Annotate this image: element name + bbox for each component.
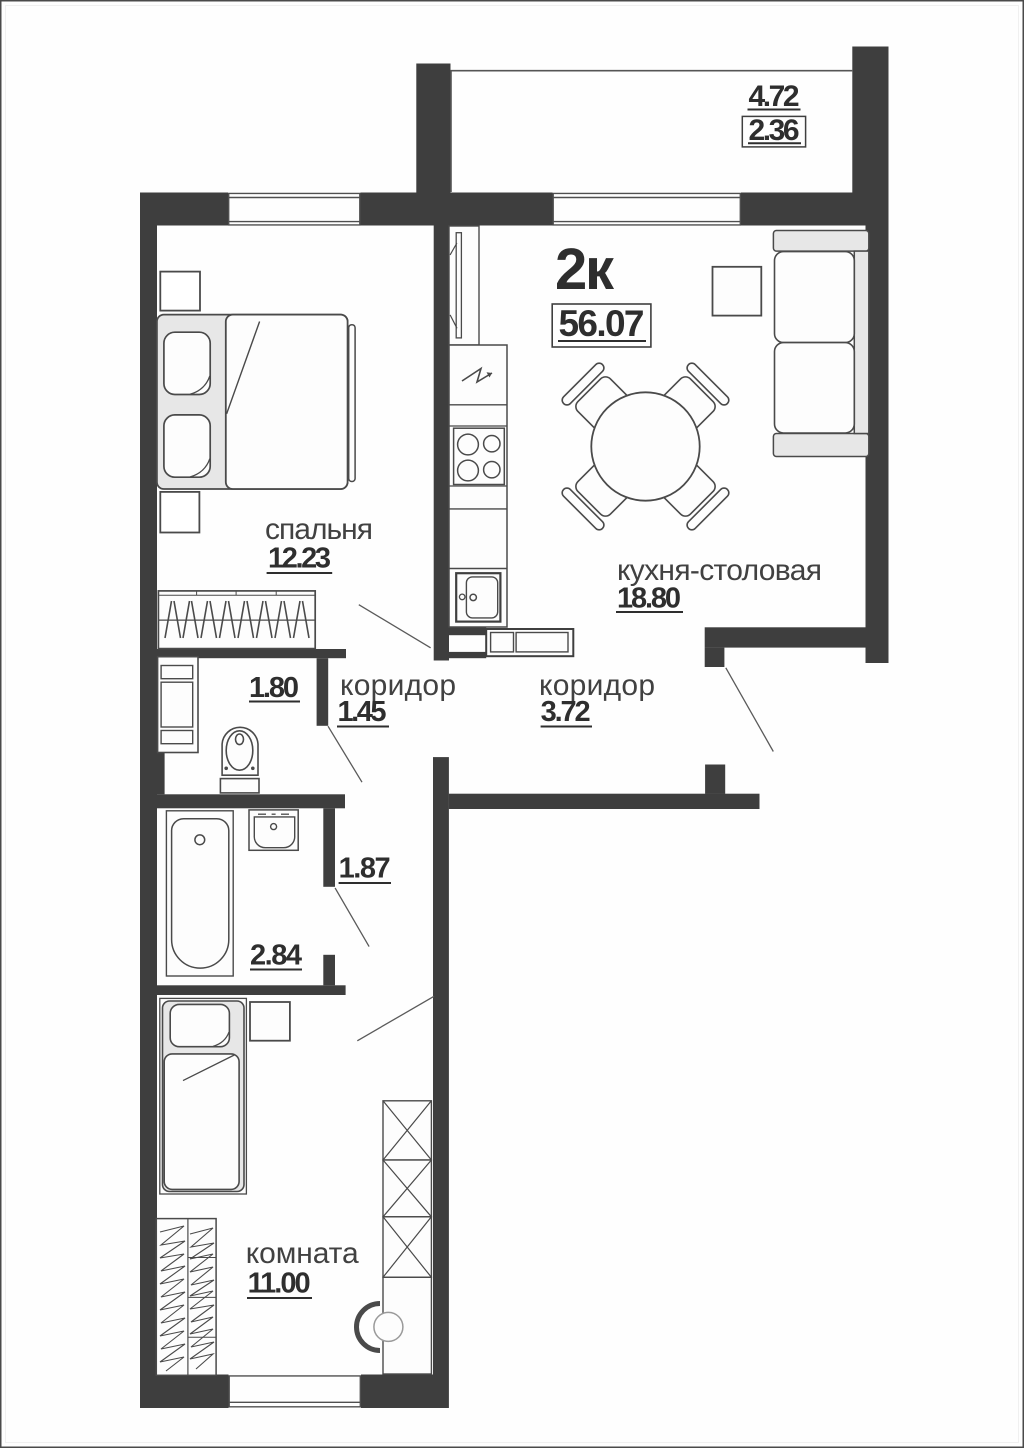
- svg-text:1.45: 1.45: [338, 696, 387, 728]
- svg-text:56.07: 56.07: [559, 303, 645, 344]
- svg-text:4.72: 4.72: [749, 80, 800, 113]
- svg-text:2к: 2к: [555, 237, 615, 302]
- svg-text:комната: комната: [246, 1237, 359, 1270]
- svg-text:2.36: 2.36: [749, 114, 800, 147]
- svg-text:12.23: 12.23: [268, 543, 331, 575]
- svg-text:1.80: 1.80: [249, 672, 299, 704]
- svg-text:2.84: 2.84: [250, 940, 302, 972]
- svg-text:1.87: 1.87: [339, 853, 391, 885]
- svg-text:спальня: спальня: [265, 513, 373, 546]
- svg-text:11.00: 11.00: [248, 1268, 311, 1300]
- svg-text:18.80: 18.80: [617, 583, 681, 615]
- svg-text:3.72: 3.72: [541, 696, 591, 728]
